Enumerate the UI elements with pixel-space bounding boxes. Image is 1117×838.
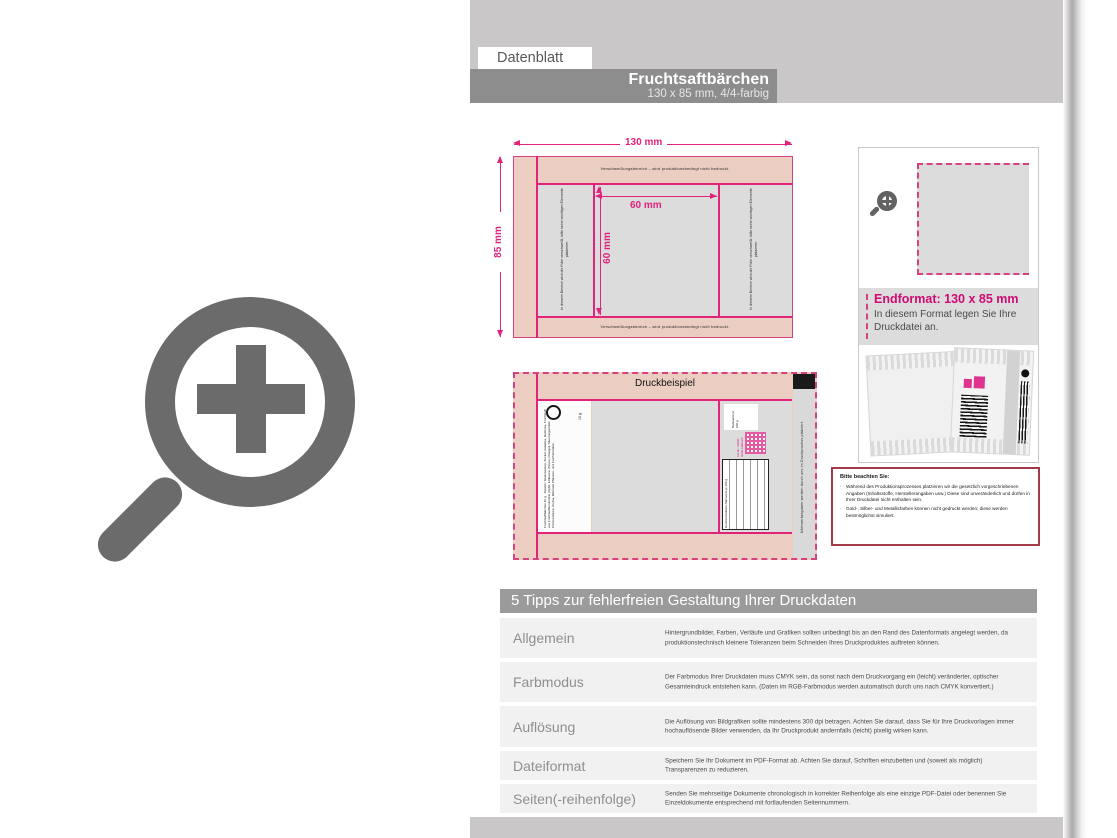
registration-black-square xyxy=(793,374,815,389)
page-footer-bar xyxy=(470,817,1065,838)
endformat-title: Endformat: 130 x 85 mm xyxy=(874,292,1019,306)
bag-pink-mark xyxy=(974,376,986,388)
dimension-label-60mm-horizontal: 60 mm xyxy=(630,200,662,211)
arrowhead-right xyxy=(785,140,792,146)
tip-row-label: Seiten(-reihenfolge) xyxy=(513,784,636,813)
tip-row-label: Farbmodus xyxy=(513,662,584,702)
nutrition-note-box: Nährwerte je 100 g xyxy=(724,404,758,430)
side-strip-note: Nährwertangaben werden durch uns im Druc… xyxy=(800,402,804,552)
tip-row-label: Allgemein xyxy=(513,618,574,658)
nutrition-table: Durchschnittliche Nährwerte je 100 g xyxy=(722,459,769,530)
print-example-label: Druckbeispiel xyxy=(538,378,792,389)
arrowhead-up xyxy=(497,156,503,163)
bag-back-printed xyxy=(950,347,1035,455)
zoom-plus-icon-small-plus-v xyxy=(886,196,889,206)
motif-border-left xyxy=(593,184,595,317)
arrowhead-left xyxy=(595,193,602,199)
seal-note-bottom: Verschweißungsbereich – wird produktions… xyxy=(538,324,792,329)
table-row: Farbmodus Der Farbmodus Ihrer Druckdaten… xyxy=(500,662,1037,702)
arrowhead-up xyxy=(596,186,602,193)
nutrition-table-header: Durchschnittliche Nährwerte je 100 g xyxy=(724,462,728,528)
tips-header-label: 5 Tipps zur fehlerfreien Gestaltung Ihre… xyxy=(500,589,1037,613)
notice-bullet-text: Während des Produktionsprozesses platzie… xyxy=(846,484,1031,504)
legal-text: Fruchtsaftbärchen 10 g · Zutaten: Glukos… xyxy=(543,404,555,528)
notice-title: Bitte beachten Sie: xyxy=(840,474,1031,480)
notice-bullet: · Gold-, Silber- und Metallicfarben könn… xyxy=(840,506,1031,519)
bag-crimp-top xyxy=(955,348,1034,365)
table-row: Seiten(-reihenfolge) Senden Sie mehrseit… xyxy=(500,784,1037,813)
seal-note-top: Verschweißungsbereich – wird produktions… xyxy=(538,166,792,171)
tip-row-label: Auflösung xyxy=(513,706,575,747)
bag-label-text-block xyxy=(959,395,988,438)
datasheet-page: Datenblatt Fruchtsaftbärchen 130 x 85 mm… xyxy=(0,0,1117,838)
dimension-label-60mm-vertical: 60 mm xyxy=(602,223,613,273)
arrowhead-down xyxy=(497,330,503,337)
bag-crimp-top xyxy=(866,352,965,371)
product-photo xyxy=(859,345,1038,462)
tips-header-bar: 5 Tipps zur fehlerfreien Gestaltung Ihre… xyxy=(500,589,1037,613)
side-note-left: In diesem Bereich wird die Folie verschw… xyxy=(560,186,570,312)
product-title-bar: Fruchtsaftbärchen 130 x 85 mm, 4/4-farbi… xyxy=(470,69,777,103)
weight-note: 10 g xyxy=(578,404,582,420)
endformat-dashed-marker xyxy=(866,294,868,339)
page-edge-shadow xyxy=(1063,0,1087,838)
arrowhead-right xyxy=(710,193,717,199)
zoom-plus-icon-handle xyxy=(91,470,189,568)
bag-pink-mark xyxy=(964,379,972,388)
notice-box: Bitte beachten Sie: · Während des Produk… xyxy=(831,467,1040,546)
tip-row-text: Speichern Sie Ihr Dokument im PDF-Format… xyxy=(665,756,1025,776)
endformat-line1: In diesem Format legen Sie Ihre xyxy=(874,309,1016,320)
seal-border-top xyxy=(537,183,792,185)
notice-bullet-text: Gold-, Silber- und Metallicfarben können… xyxy=(846,506,1031,519)
tip-row-text: Der Farbmodus Ihrer Druckdaten muss CMYK… xyxy=(665,672,1025,692)
table-row: Dateiformat Speichern Sie Ihr Dokument i… xyxy=(500,751,1037,780)
endformat-line2: Druckdatei an. xyxy=(874,322,938,333)
dimension-line-60mm-vertical xyxy=(600,187,601,315)
datenblatt-tab: Datenblatt xyxy=(478,47,592,69)
product-format-subtitle: 130 x 85 mm, 4/4-farbig xyxy=(470,88,769,101)
arrowhead-left xyxy=(513,140,520,146)
tip-row-label: Dateiformat xyxy=(513,751,585,780)
dimension-label-130mm: 130 mm xyxy=(620,137,667,148)
footer-divider-line xyxy=(537,532,792,534)
endformat-preview-square xyxy=(917,163,1029,275)
nutrition-note-text: Nährwerte je 100 g xyxy=(731,406,739,428)
product-title: Fruchtsaftbärchen xyxy=(470,71,769,88)
zoom-plus-icon-plus-vertical xyxy=(236,345,266,453)
notice-bullet: · Während des Produktionsprozesses platz… xyxy=(840,484,1031,504)
side-note-right: In diesem Bereich wird die Folie verschw… xyxy=(749,186,759,312)
bag-logo-dot xyxy=(1021,369,1029,377)
qr-code-pink xyxy=(745,432,766,454)
tip-row-text: Hintergrundbilder, Farben, Verläufe und … xyxy=(665,628,1025,648)
side-strip xyxy=(793,374,815,558)
table-row: Auflösung Die Auflösung von Bildgrafiken… xyxy=(500,706,1037,747)
tip-row-text: Senden Sie mehrseitige Dokumente chronol… xyxy=(665,789,1025,809)
table-row: Allgemein Hintergrundbilder, Farben, Ver… xyxy=(500,618,1037,658)
bag-label-text-block xyxy=(1018,381,1030,443)
seal-border-bottom xyxy=(537,316,792,318)
motif-area xyxy=(592,401,718,532)
datenblatt-tab-label: Datenblatt xyxy=(478,47,592,69)
dimension-label-85mm: 85 mm xyxy=(493,212,504,272)
dimension-line-60mm-horizontal xyxy=(596,196,717,197)
lot-text: Lot-Nr. / MHD: siehe Aufdruck xyxy=(737,433,745,457)
arrowhead-down xyxy=(596,308,602,315)
motif-border-right xyxy=(718,184,720,317)
tip-row-text: Die Auflösung von Bildgrafiken sollte mi… xyxy=(665,717,1025,737)
